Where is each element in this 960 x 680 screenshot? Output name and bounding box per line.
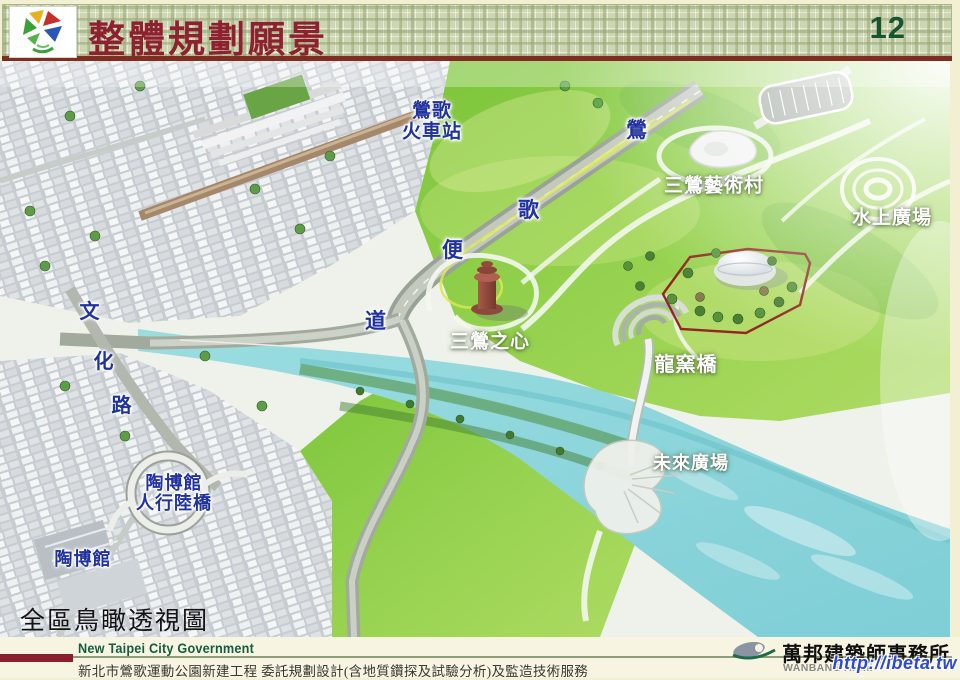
- map-label-dragon-kiln-bridge: 龍窯橋: [655, 354, 718, 376]
- footer: New Taipei City Government 新北市鶯歌運動公園新建工程…: [0, 637, 960, 678]
- map-label-sanying-art-village: 三鶯藝術村: [664, 175, 764, 196]
- aerial-rendering: 鶯歌火車站鶯歌便道三鶯藝術村水上廣場三鶯之心龍窯橋未來廣場文化路陶博館人行陸橋陶…: [0, 61, 950, 637]
- map-label-water-plaza: 水上廣場: [852, 207, 932, 228]
- map-label-wenhua-road-char-3: 路: [112, 395, 133, 417]
- map-label-sanying-heart: 三鶯之心: [450, 331, 530, 352]
- map-label-yingge-train-station: 鶯歌火車站: [402, 101, 462, 144]
- page-number: 12: [870, 10, 906, 46]
- government-name-en: New Taipei City Government: [78, 641, 254, 656]
- map-label-ceramics-museum-footbridge: 陶博館人行陸橋: [136, 473, 212, 513]
- map-label-wenhua-road-char-2: 化: [94, 351, 115, 373]
- map-labels: 鶯歌火車站鶯歌便道三鶯藝術村水上廣場三鶯之心龍窯橋未來廣場文化路陶博館人行陸橋陶…: [0, 61, 950, 637]
- project-title: 新北市鶯歌運動公園新建工程 委託規劃設計(含地質鑽探及試驗分析)及監造技術服務: [78, 660, 588, 680]
- map-label-ceramics-museum: 陶博館: [55, 549, 112, 569]
- pinwheel-logo-icon: [17, 9, 69, 55]
- watermark-url: http://ibeta.tw: [833, 653, 957, 674]
- government-logo: [9, 6, 77, 58]
- map-label-yingge-bypass-char-4: 道: [365, 310, 387, 334]
- map-label-yingge-bypass-char-3: 便: [442, 239, 464, 263]
- map-label-wenhua-road-char-1: 文: [80, 301, 101, 323]
- map-label-future-plaza: 未來廣場: [653, 453, 729, 473]
- wanbang-logo-icon: [730, 642, 778, 664]
- page-title: 整體規劃願景: [88, 9, 328, 63]
- footer-red-bar: [0, 654, 73, 662]
- map-label-yingge-bypass-char-1: 鶯: [626, 119, 648, 143]
- map-caption: 全區鳥瞰透視圖: [20, 601, 209, 637]
- map-label-yingge-bypass-char-2: 歌: [518, 199, 540, 223]
